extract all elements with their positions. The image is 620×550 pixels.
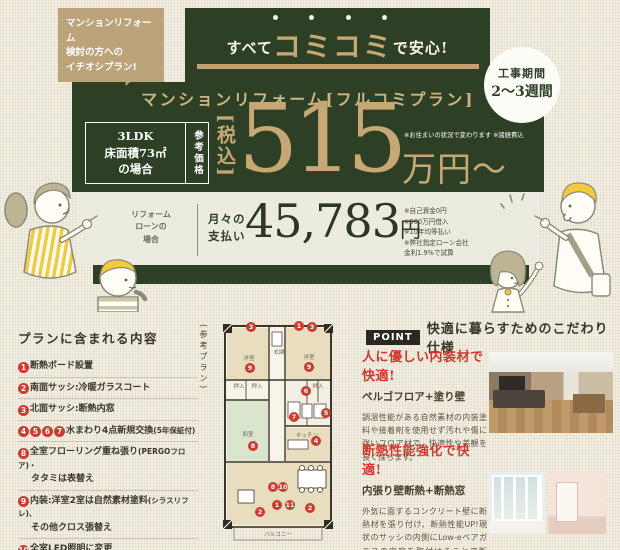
plan-contents-list: 1断熱ボード設置 2南面サッシ:冷暖ガラスコート 3北面サッシ:断熱内窓 456… [18,356,198,550]
item-number-badge: 3 [18,405,29,416]
floorplan: 洋室洋室玄関押入押入押入和室キッチンバルコニー31399657848101112… [222,322,334,546]
sparkle-lines [500,192,530,218]
plan-item-text: 水まわり4点新規交換 [66,426,153,436]
item-number-badge: 2 [18,383,29,394]
floorplan-marker: 11 [285,500,295,510]
monthly-payment-amount: 45,783円 [245,194,421,249]
monthly-line: 月々の [208,211,246,228]
feature-body: 外気に面するコンクリート壁に断熱材を張り付け、断熱性能UP!現状のサッシの内側に… [362,505,487,550]
photo-room-corner [548,472,606,534]
floorplan-marker: 4 [311,436,321,446]
illustration-girl [474,240,548,314]
floorplan-marker: 9 [245,363,255,373]
loan-case-label: リフォーム ローンの 場合 [112,209,190,246]
illustration-boy [84,250,156,312]
plan-item: 2南面サッシ:冷暖ガラスコート [18,378,198,400]
floorplan-room-label: 押入 [312,382,323,390]
divider [197,204,198,256]
plan-contents: プランに含まれる内容 1断熱ボード設置 2南面サッシ:冷暖ガラスコート 3北面サ… [18,328,198,550]
floorplan-marker: 8 [248,441,258,451]
price-note: ※お住まいの状況で変わります ※諸経費込 [404,130,540,139]
feature-subtitle: 内張り壁断熱+断熱窓 [362,483,487,498]
plan-item-text: 断熱ボード設置 [30,361,93,371]
plan-item-text: 南面サッシ:冷暖ガラスコート [30,383,150,393]
item-number-badge: 7 [54,426,65,437]
plan-item: 8全室フローリング重ね張り(PERGOフロア)・ タタミは表替え [18,442,198,491]
photo-window [489,472,545,534]
point-badge: POINT [366,330,420,345]
plan-item: 4567水まわり4点新規交換(5年保証付) [18,421,198,443]
bubble-line: マンションリフォーム [66,17,156,46]
catch-copy: すべてコミコミで安心! [185,25,490,65]
floorplan-marker: 6 [301,386,311,396]
plan-item-note: (5年保証付) [153,426,195,435]
floorplan-marker: 1 [294,321,304,331]
price-amount: 515 [238,92,401,187]
reference-price-label: 参考価格 [190,130,204,176]
floorplan-markers: 洋室洋室玄関押入押入押入和室キッチンバルコニー31399657848101112… [222,322,334,546]
banner-top-panel: すべてコミコミで安心! [185,8,490,82]
floorplan-marker: 3 [307,322,317,332]
catch-prefix: すべて [227,39,273,57]
plan-item-text: 北面サッシ:断熱内窓 [30,404,115,414]
loan-note: ※500万円借入 [404,217,522,228]
floorplan-marker: 8 [268,482,278,492]
floorplan-marker: 5 [321,408,331,418]
floorplan-room-label: 玄関 [273,348,284,356]
bubble-line: 検討の方への [66,46,156,61]
item-number-badge: 4 [18,426,29,437]
floorplan-marker: 2 [255,507,265,517]
flyer-page: すべてコミコミで安心! マンションリフォーム 検討の方への イチオシプラン! マ… [0,0,620,550]
plan-item: 1断熱ボード設置 [18,356,198,378]
plan-item-text: その他クロス張替え [18,522,198,536]
condition-box: 3LDK 床面積73㎡ の場合 参考価格 [85,122,209,184]
floorplan-room-label: 洋室 [303,353,314,361]
monthly-amount-value: 45,783 [245,194,400,248]
monthly-line: 支払い [208,228,246,245]
item-number-badge: 10 [18,545,29,550]
banner-bottom-strip [93,265,529,284]
feature-section-insulation: 断熱性能強化で快適! 内張り壁断熱+断熱窓 外気に面するコンクリート壁に断熱材を… [362,440,487,550]
condition-line: 床面積73㎡ [86,145,185,162]
catch-suffix: で安心! [393,39,449,57]
floorplan-marker: 2 [305,503,315,513]
plan-item-text: タタミは表替え [18,473,198,487]
feature-title: 人に優しい内装材で快適! [362,346,487,384]
feature-title: 断熱性能強化で快適! [362,440,487,478]
floorplan-caption: (参考プラン) [198,324,209,391]
plan-item: 3北面サッシ:断熱内窓 [18,399,198,421]
loan-note: ※10年均等払い [404,227,522,238]
plan-item-text: 全室LED照明に変更 [30,544,112,550]
construction-period-badge: 工事期間 2〜3週間 [484,47,560,123]
period-label: 工事期間 [484,65,560,81]
loan-case-line: リフォーム [112,209,190,221]
item-number-badge: 6 [42,426,53,437]
price-unit: 万円〜 [402,142,507,191]
floorplan-marker: 9 [304,362,314,372]
catch-emphasis: コミコミ [273,30,393,63]
catch-underline [197,64,479,69]
condition-line: 3LDK [86,128,185,145]
feature-subtitle: ペルゴフロア+塗り壁 [362,389,487,404]
floorplan-room-label: バルコニー [264,530,291,538]
tax-included-label: [税込] [212,114,239,190]
condition-line: の場合 [86,161,185,178]
accent-dots [273,15,387,20]
bubble-line: イチオシプラン! [66,61,156,76]
photo-living-room [489,352,613,433]
item-number-badge: 5 [30,426,41,437]
floorplan-marker: 7 [289,412,299,422]
plan-contents-title: プランに含まれる内容 [18,328,198,347]
monthly-payment-label: 月々の 支払い [208,211,246,246]
condition-text: 3LDK 床面積73㎡ の場合 [86,123,185,183]
period-value: 2〜3週間 [484,81,560,101]
floorplan-room-label: 押入 [233,382,244,390]
plan-item-text: 内装:洋室2室は自然素材塗料 [30,496,148,506]
plan-item: 10全室LED照明に変更 [18,539,198,550]
item-number-badge: 8 [18,448,29,459]
floorplan-room-label: 洋室 [243,354,254,362]
plan-item-text: 全室フローリング重ね張り [30,447,138,457]
loan-case-line: ローンの [112,221,190,233]
plan-item: 9内装:洋室2室は自然素材塗料(シラスリフレ)、 その他クロス張替え [18,491,198,540]
loan-case-line: 場合 [112,234,190,246]
floorplan-room-label: 押入 [251,382,262,390]
floorplan-marker: 1 [272,500,282,510]
item-number-badge: 9 [18,496,29,507]
floorplan-marker: 3 [246,322,256,332]
recommend-bubble: マンションリフォーム 検討の方への イチオシプラン! [58,8,164,82]
floorplan-marker: 10 [278,482,288,492]
floorplan-room-label: 和室 [242,430,253,438]
reference-price-cell: 参考価格 [185,123,208,183]
item-number-badge: 1 [18,362,29,373]
